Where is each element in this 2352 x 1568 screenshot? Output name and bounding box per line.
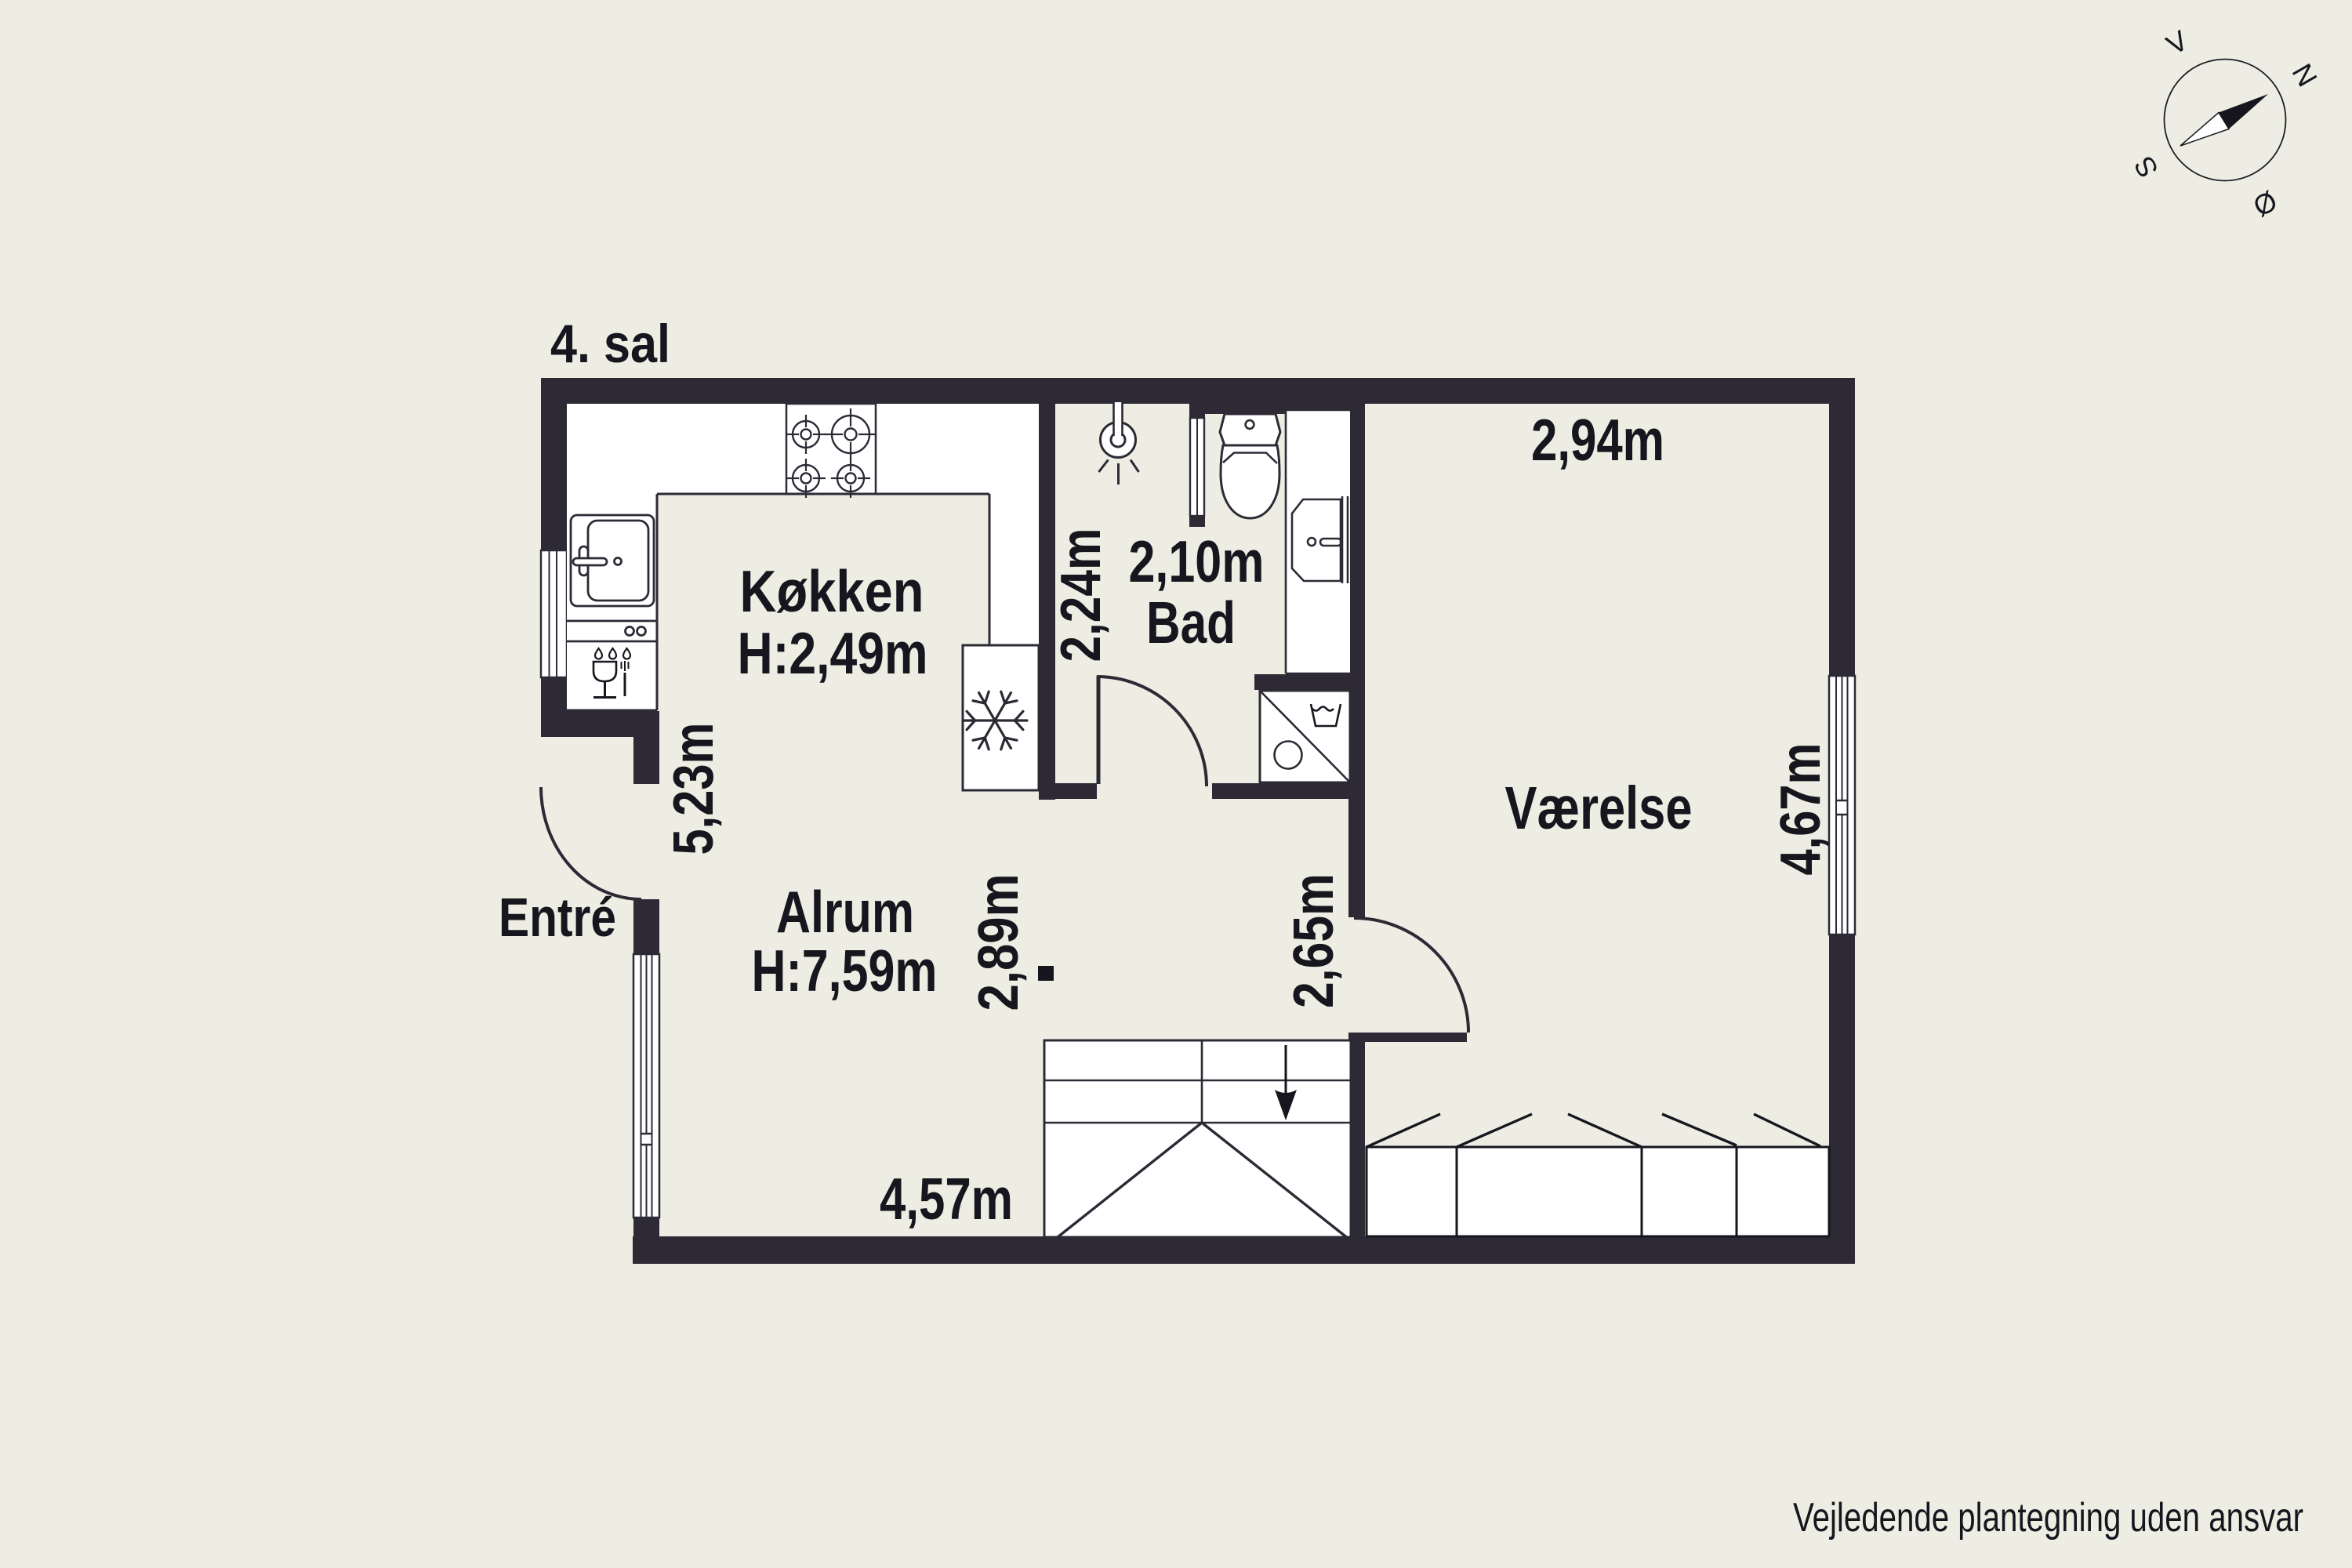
svg-text:Værelse: Værelse xyxy=(1505,775,1693,842)
svg-text:4,57m: 4,57m xyxy=(880,1166,1013,1232)
svg-text:4. sal: 4. sal xyxy=(550,314,670,374)
svg-text:H:7,59m: H:7,59m xyxy=(752,938,938,1004)
svg-text:Køkken: Køkken xyxy=(740,558,924,624)
svg-text:Entré: Entré xyxy=(499,887,616,948)
svg-text:2,24m: 2,24m xyxy=(1050,528,1112,662)
svg-text:4,67m: 4,67m xyxy=(1769,743,1832,876)
svg-text:2,94m: 2,94m xyxy=(1531,407,1664,473)
svg-text:2,65m: 2,65m xyxy=(1283,873,1345,1008)
svg-text:2,89m: 2,89m xyxy=(967,874,1030,1011)
svg-text:H:2,49m: H:2,49m xyxy=(738,620,928,686)
svg-text:2,10m: 2,10m xyxy=(1129,528,1265,594)
svg-text:Bad: Bad xyxy=(1146,590,1236,655)
svg-text:5,23m: 5,23m xyxy=(662,723,725,855)
svg-text:Alrum: Alrum xyxy=(776,879,914,945)
svg-text:Vejledende plantegning uden an: Vejledende plantegning uden ansvar xyxy=(1793,1495,2303,1541)
